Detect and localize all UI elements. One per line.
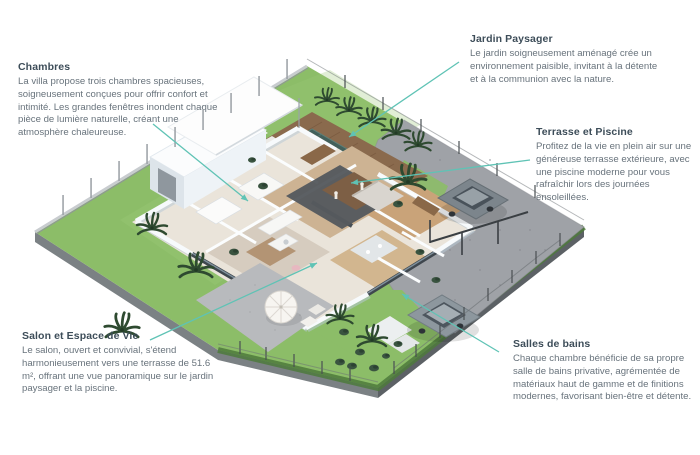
annotation-terrasse-piscine: Terrasse et Piscine Profitez de la vie e… <box>536 126 699 205</box>
annotation-body: Le jardin soigneusement aménagé crée un … <box>470 48 662 86</box>
annotation-jardin-paysager: Jardin Paysager Le jardin soigneusement … <box>470 33 662 86</box>
annotation-title: Salles de bains <box>513 338 700 350</box>
annotation-title: Jardin Paysager <box>470 33 662 45</box>
annotation-salon-espace-de-vie: Salon et Espace de Vie Le salon, ouvert … <box>22 330 218 396</box>
annotation-chambres: Chambres La villa propose trois chambres… <box>18 61 223 140</box>
annotation-title: Salon et Espace de Vie <box>22 330 218 342</box>
annotation-body: Chaque chambre bénéficie de sa propre sa… <box>513 353 700 404</box>
villa-infographic: Chambres La villa propose trois chambres… <box>0 0 700 455</box>
annotation-salles-de-bains: Salles de bains Chaque chambre bénéficie… <box>513 338 700 404</box>
annotation-body: Profitez de la vie en plein air sur une … <box>536 141 699 205</box>
pouf <box>292 265 301 271</box>
annotation-body: Le salon, ouvert et convivial, s'étend h… <box>22 345 218 396</box>
annotation-title: Chambres <box>18 61 223 73</box>
annotation-title: Terrasse et Piscine <box>536 126 699 138</box>
annotation-body: La villa propose trois chambres spacieus… <box>18 76 223 140</box>
